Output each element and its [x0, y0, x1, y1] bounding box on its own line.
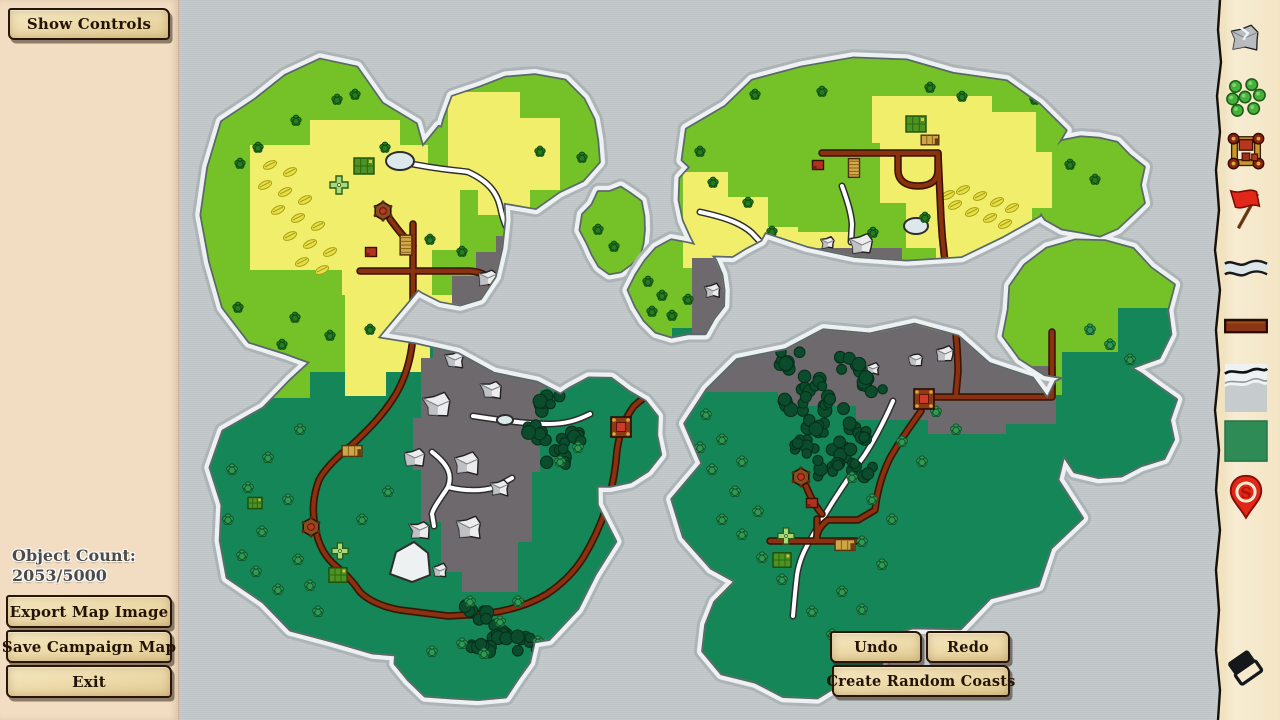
- river-icon: [1223, 254, 1269, 286]
- tool-river[interactable]: [1223, 254, 1269, 286]
- tool-rock[interactable]: [1223, 14, 1269, 60]
- coast-icon: [1223, 362, 1269, 416]
- object-count: Object Count: 2053/5000: [12, 546, 172, 586]
- object-count-label: Object Count:: [12, 546, 172, 566]
- redo-button[interactable]: Redo: [926, 631, 1010, 663]
- tool-eraser[interactable]: [1223, 644, 1269, 694]
- left-panel: Show Controls Object Count: 2053/5000 Ex…: [0, 0, 179, 720]
- map-canvas[interactable]: [178, 0, 1212, 720]
- show-controls-button[interactable]: Show Controls: [8, 8, 170, 40]
- svg-text:S: S: [1240, 484, 1251, 502]
- road-icon: [1223, 318, 1269, 336]
- trees-icon: [1223, 76, 1269, 120]
- eraser-icon: [1223, 644, 1269, 694]
- flag-icon: [1223, 186, 1269, 236]
- object-count-value: 2053/5000: [12, 566, 172, 586]
- tool-marker[interactable]: S: [1223, 472, 1269, 534]
- rock-icon: [1223, 14, 1269, 60]
- undo-button[interactable]: Undo: [830, 631, 922, 663]
- tool-sidebar: S: [1212, 0, 1280, 720]
- location-pin-icon: S: [1223, 472, 1269, 534]
- green-terrain-icon: [1223, 420, 1269, 464]
- tool-terrain[interactable]: [1223, 420, 1269, 464]
- building-icon: [1223, 128, 1269, 180]
- campaign-map-editor: Undo Redo Create Random Coasts Show Cont…: [0, 0, 1280, 720]
- tool-flag[interactable]: [1223, 186, 1269, 236]
- export-map-image-button[interactable]: Export Map Image: [6, 595, 172, 628]
- create-random-coasts-button[interactable]: Create Random Coasts: [832, 665, 1010, 697]
- save-campaign-map-button[interactable]: Save Campaign Map: [6, 630, 172, 663]
- tool-trees[interactable]: [1223, 76, 1269, 120]
- tool-building[interactable]: [1223, 128, 1269, 180]
- tool-coast[interactable]: [1223, 362, 1269, 416]
- exit-button[interactable]: Exit: [6, 665, 172, 698]
- tool-road[interactable]: [1223, 318, 1269, 336]
